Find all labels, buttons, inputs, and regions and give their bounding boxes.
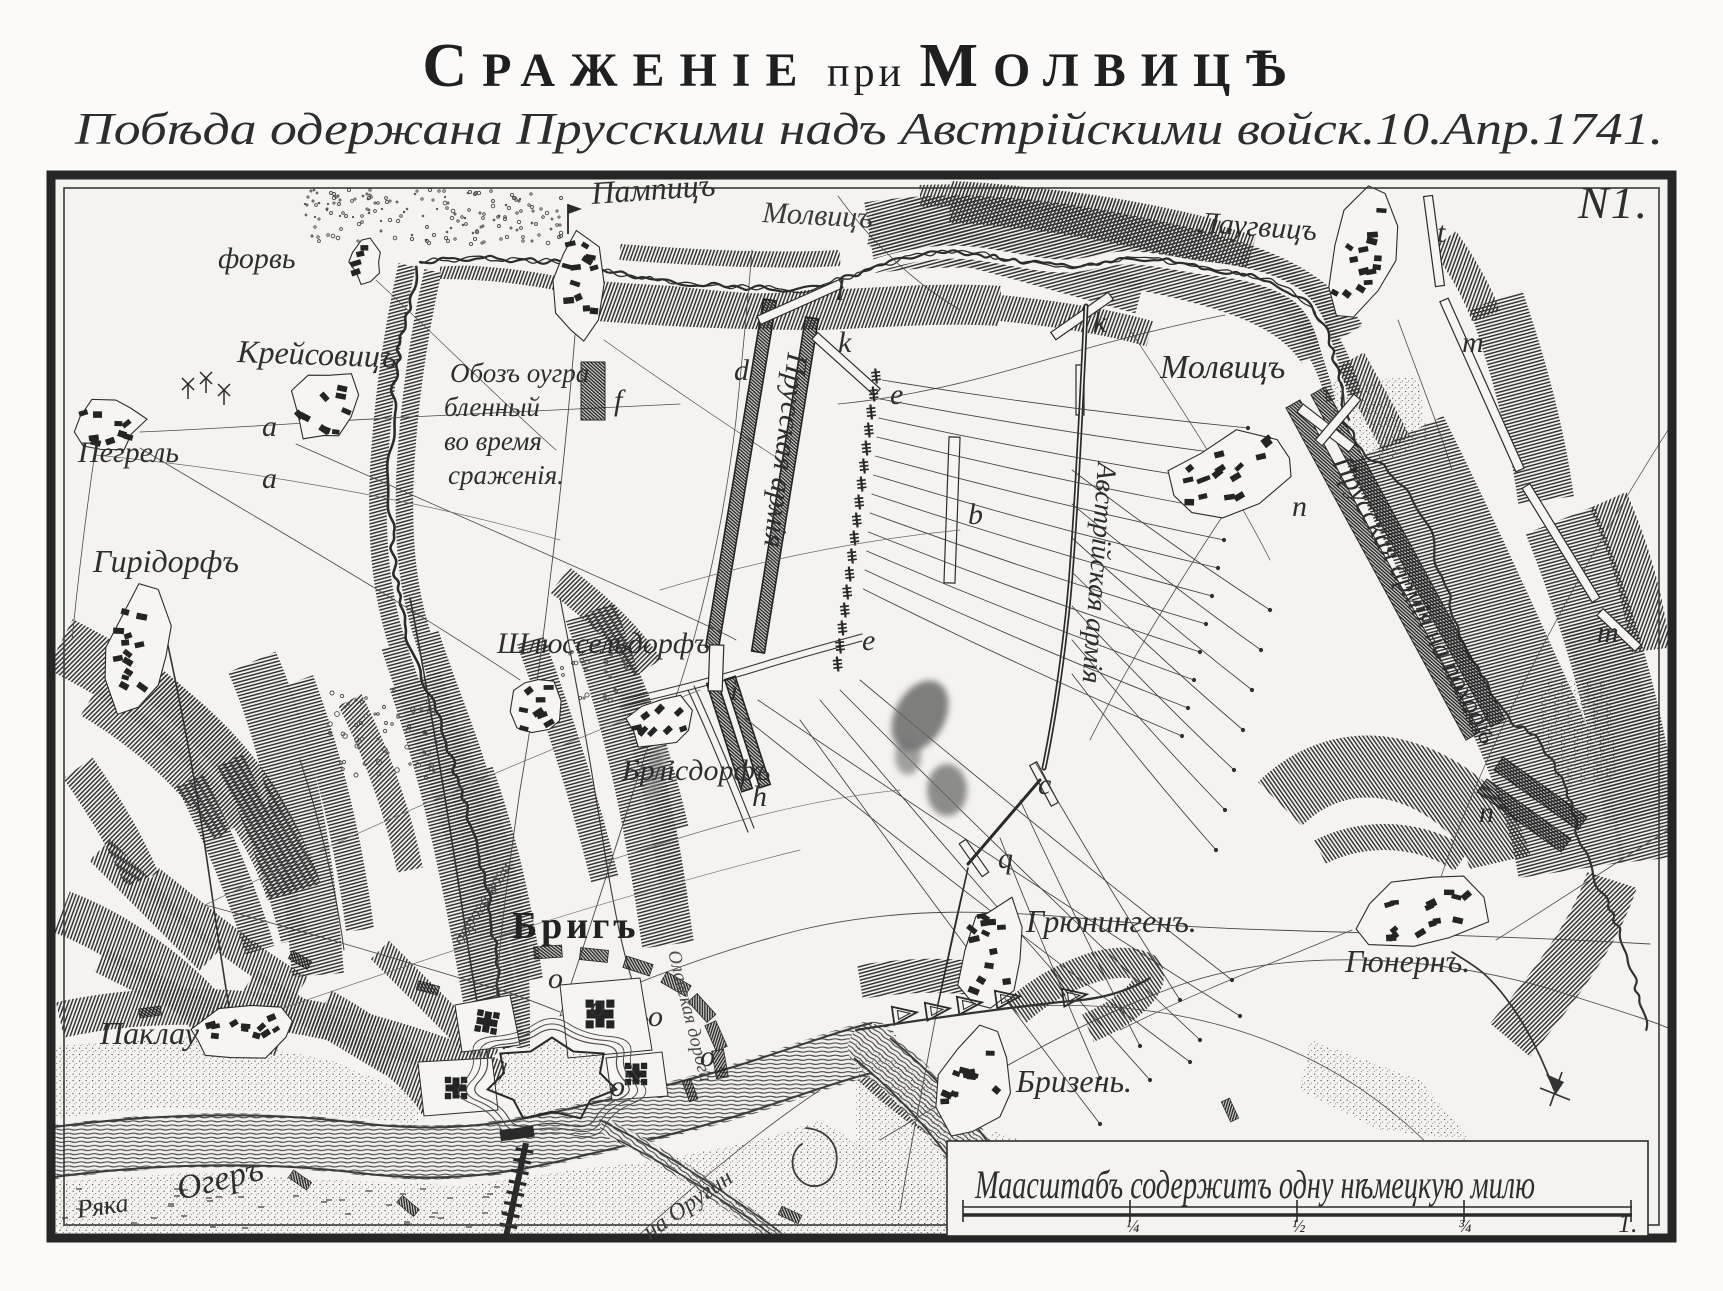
svg-text:e: e [890,378,903,411]
svg-text:t: t [1437,216,1446,249]
svg-text:n: n [1292,490,1307,523]
svg-text:o: o [648,1000,663,1033]
svg-text:k: k [838,326,852,359]
svg-text:форвь: форвь [218,242,296,275]
svg-text:бленный: бленный [444,392,540,422]
svg-text:во время: во время [444,426,542,456]
svg-text:q: q [998,842,1013,875]
svg-text:N1.: N1. [1577,177,1649,228]
svg-text:½: ½ [1292,1216,1306,1236]
svg-text:o: o [700,1040,715,1073]
svg-text:Гюнернъ.: Гюнернъ. [1344,943,1470,979]
svg-text:a: a [262,462,277,495]
svg-text:Молвицъ: Молвицъ [761,196,874,235]
svg-text:Обозъ оугра: Обозъ оугра [450,358,589,388]
svg-text:сраженія.: сраженія. [448,460,564,490]
svg-text:o: o [590,990,605,1023]
svg-text:m: m [1462,326,1484,359]
svg-text:l: l [836,274,844,307]
svg-text:k: k [1093,306,1107,339]
svg-text:Грюнингенъ.: Грюнингенъ. [1025,903,1197,939]
svg-text:e: e [862,624,875,657]
svg-text:h: h [752,780,767,813]
svg-text:Гирідорфъ: Гирідорфъ [92,543,239,579]
svg-text:Брлісдорфъ: Брлісдорфъ [621,754,770,787]
svg-text:Побѣда одержана Прусскими надъ: Побѣда одержана Прусскими надъ Австрійск… [74,103,1663,154]
svg-text:Бризень.: Бризень. [1015,1063,1132,1099]
svg-text:a: a [262,410,277,443]
svg-text:¼: ¼ [1126,1216,1140,1236]
svg-text:Крейсовицъ: Крейсовицъ [236,333,398,375]
svg-text:1.: 1. [1618,1209,1638,1238]
svg-text:¾: ¾ [1458,1216,1472,1236]
svg-text:Паклау: Паклау [99,1015,200,1051]
svg-text:Маасштабъ содержитъ одну нѣмец: Маасштабъ содержитъ одну нѣмецкую милю [974,1162,1535,1207]
svg-text:i: i [730,674,738,707]
svg-text:b: b [968,498,983,531]
svg-text:o: o [610,1070,625,1103]
svg-text:Молвицъ: Молвицъ [1159,349,1285,386]
svg-text:n: n [1479,796,1494,829]
svg-text:d: d [734,354,750,387]
svg-text:c: c [1038,768,1051,801]
svg-text:Бригъ: Бригъ [512,905,640,947]
svg-text:m: m [1597,616,1619,649]
svg-text:o: o [548,962,563,995]
svg-text:Пегрель: Пегрель [77,436,179,469]
svg-text:Шлюссельдорфъ: Шлюссельдорфъ [496,627,710,660]
